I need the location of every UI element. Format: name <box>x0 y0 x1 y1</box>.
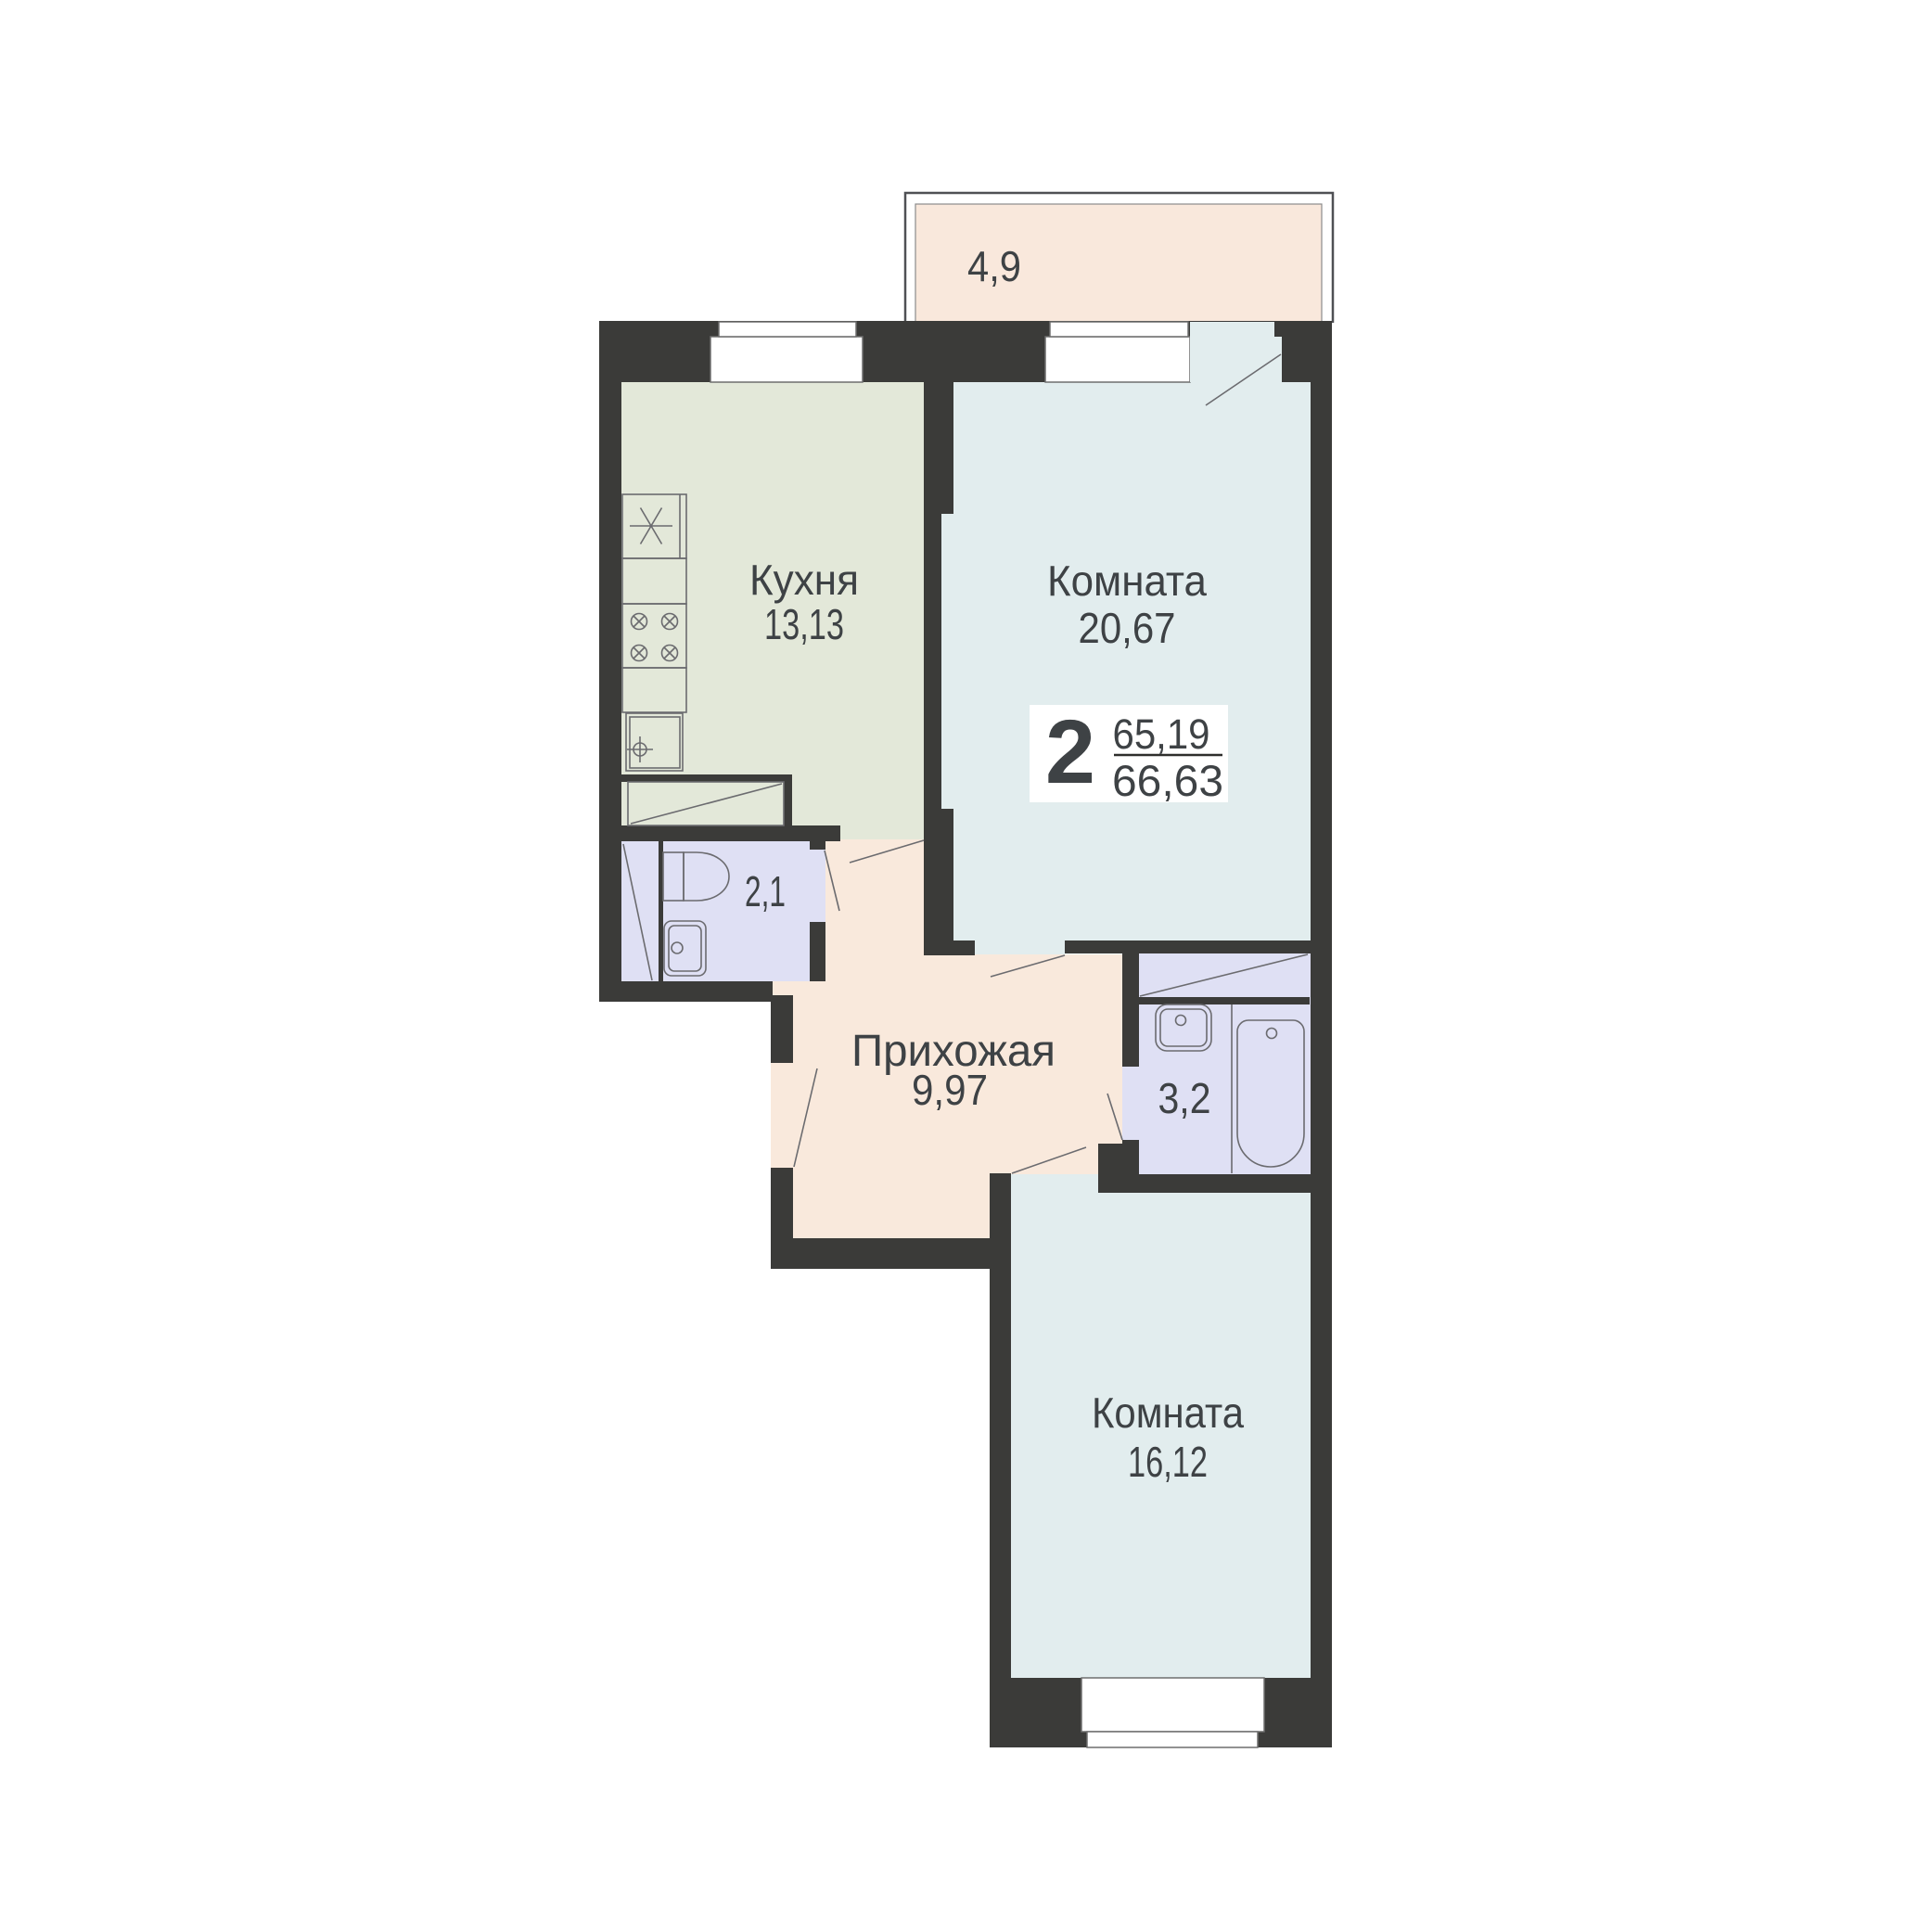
svg-text:2: 2 <box>1045 701 1095 802</box>
svg-text:3,2: 3,2 <box>1158 1074 1211 1122</box>
svg-text:65,19: 65,19 <box>1113 710 1210 758</box>
svg-text:Комната: Комната <box>1092 1388 1244 1437</box>
svg-text:66,63: 66,63 <box>1112 756 1223 805</box>
svg-text:9,97: 9,97 <box>912 1066 988 1114</box>
svg-text:4,9: 4,9 <box>967 242 1021 290</box>
svg-text:2,1: 2,1 <box>745 867 786 915</box>
svg-text:20,67: 20,67 <box>1079 604 1176 652</box>
svg-text:13,13: 13,13 <box>764 600 844 648</box>
svg-text:Комната: Комната <box>1047 557 1207 605</box>
svg-text:16,12: 16,12 <box>1128 1438 1208 1486</box>
svg-text:Кухня: Кухня <box>749 556 859 604</box>
